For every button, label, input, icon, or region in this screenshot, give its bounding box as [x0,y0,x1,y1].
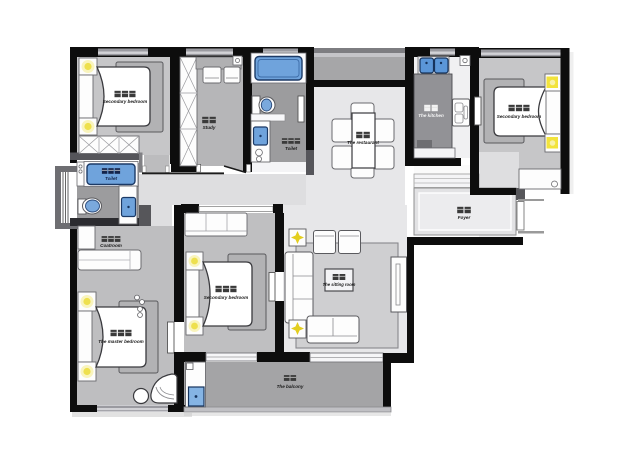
svg-text:The kitchen: The kitchen [418,113,444,118]
svg-text:Study: Study [203,125,216,130]
svg-text:Secondary bedroom: Secondary bedroom [204,295,248,300]
svg-text:Secondary bedroom: Secondary bedroom [497,114,541,119]
svg-text:Coatroom: Coatroom [100,243,122,248]
svg-text:The restaurant: The restaurant [347,140,379,145]
svg-text:Toilet: Toilet [105,176,118,181]
svg-text:Secondary bedroom: Secondary bedroom [103,99,147,104]
svg-text:The master bedroom: The master bedroom [98,339,143,344]
svg-text:Foyer: Foyer [458,215,471,220]
svg-text:Toilet: Toilet [285,146,298,151]
svg-text:The balcony: The balcony [277,384,304,389]
svg-text:The sitting room: The sitting room [323,282,356,287]
